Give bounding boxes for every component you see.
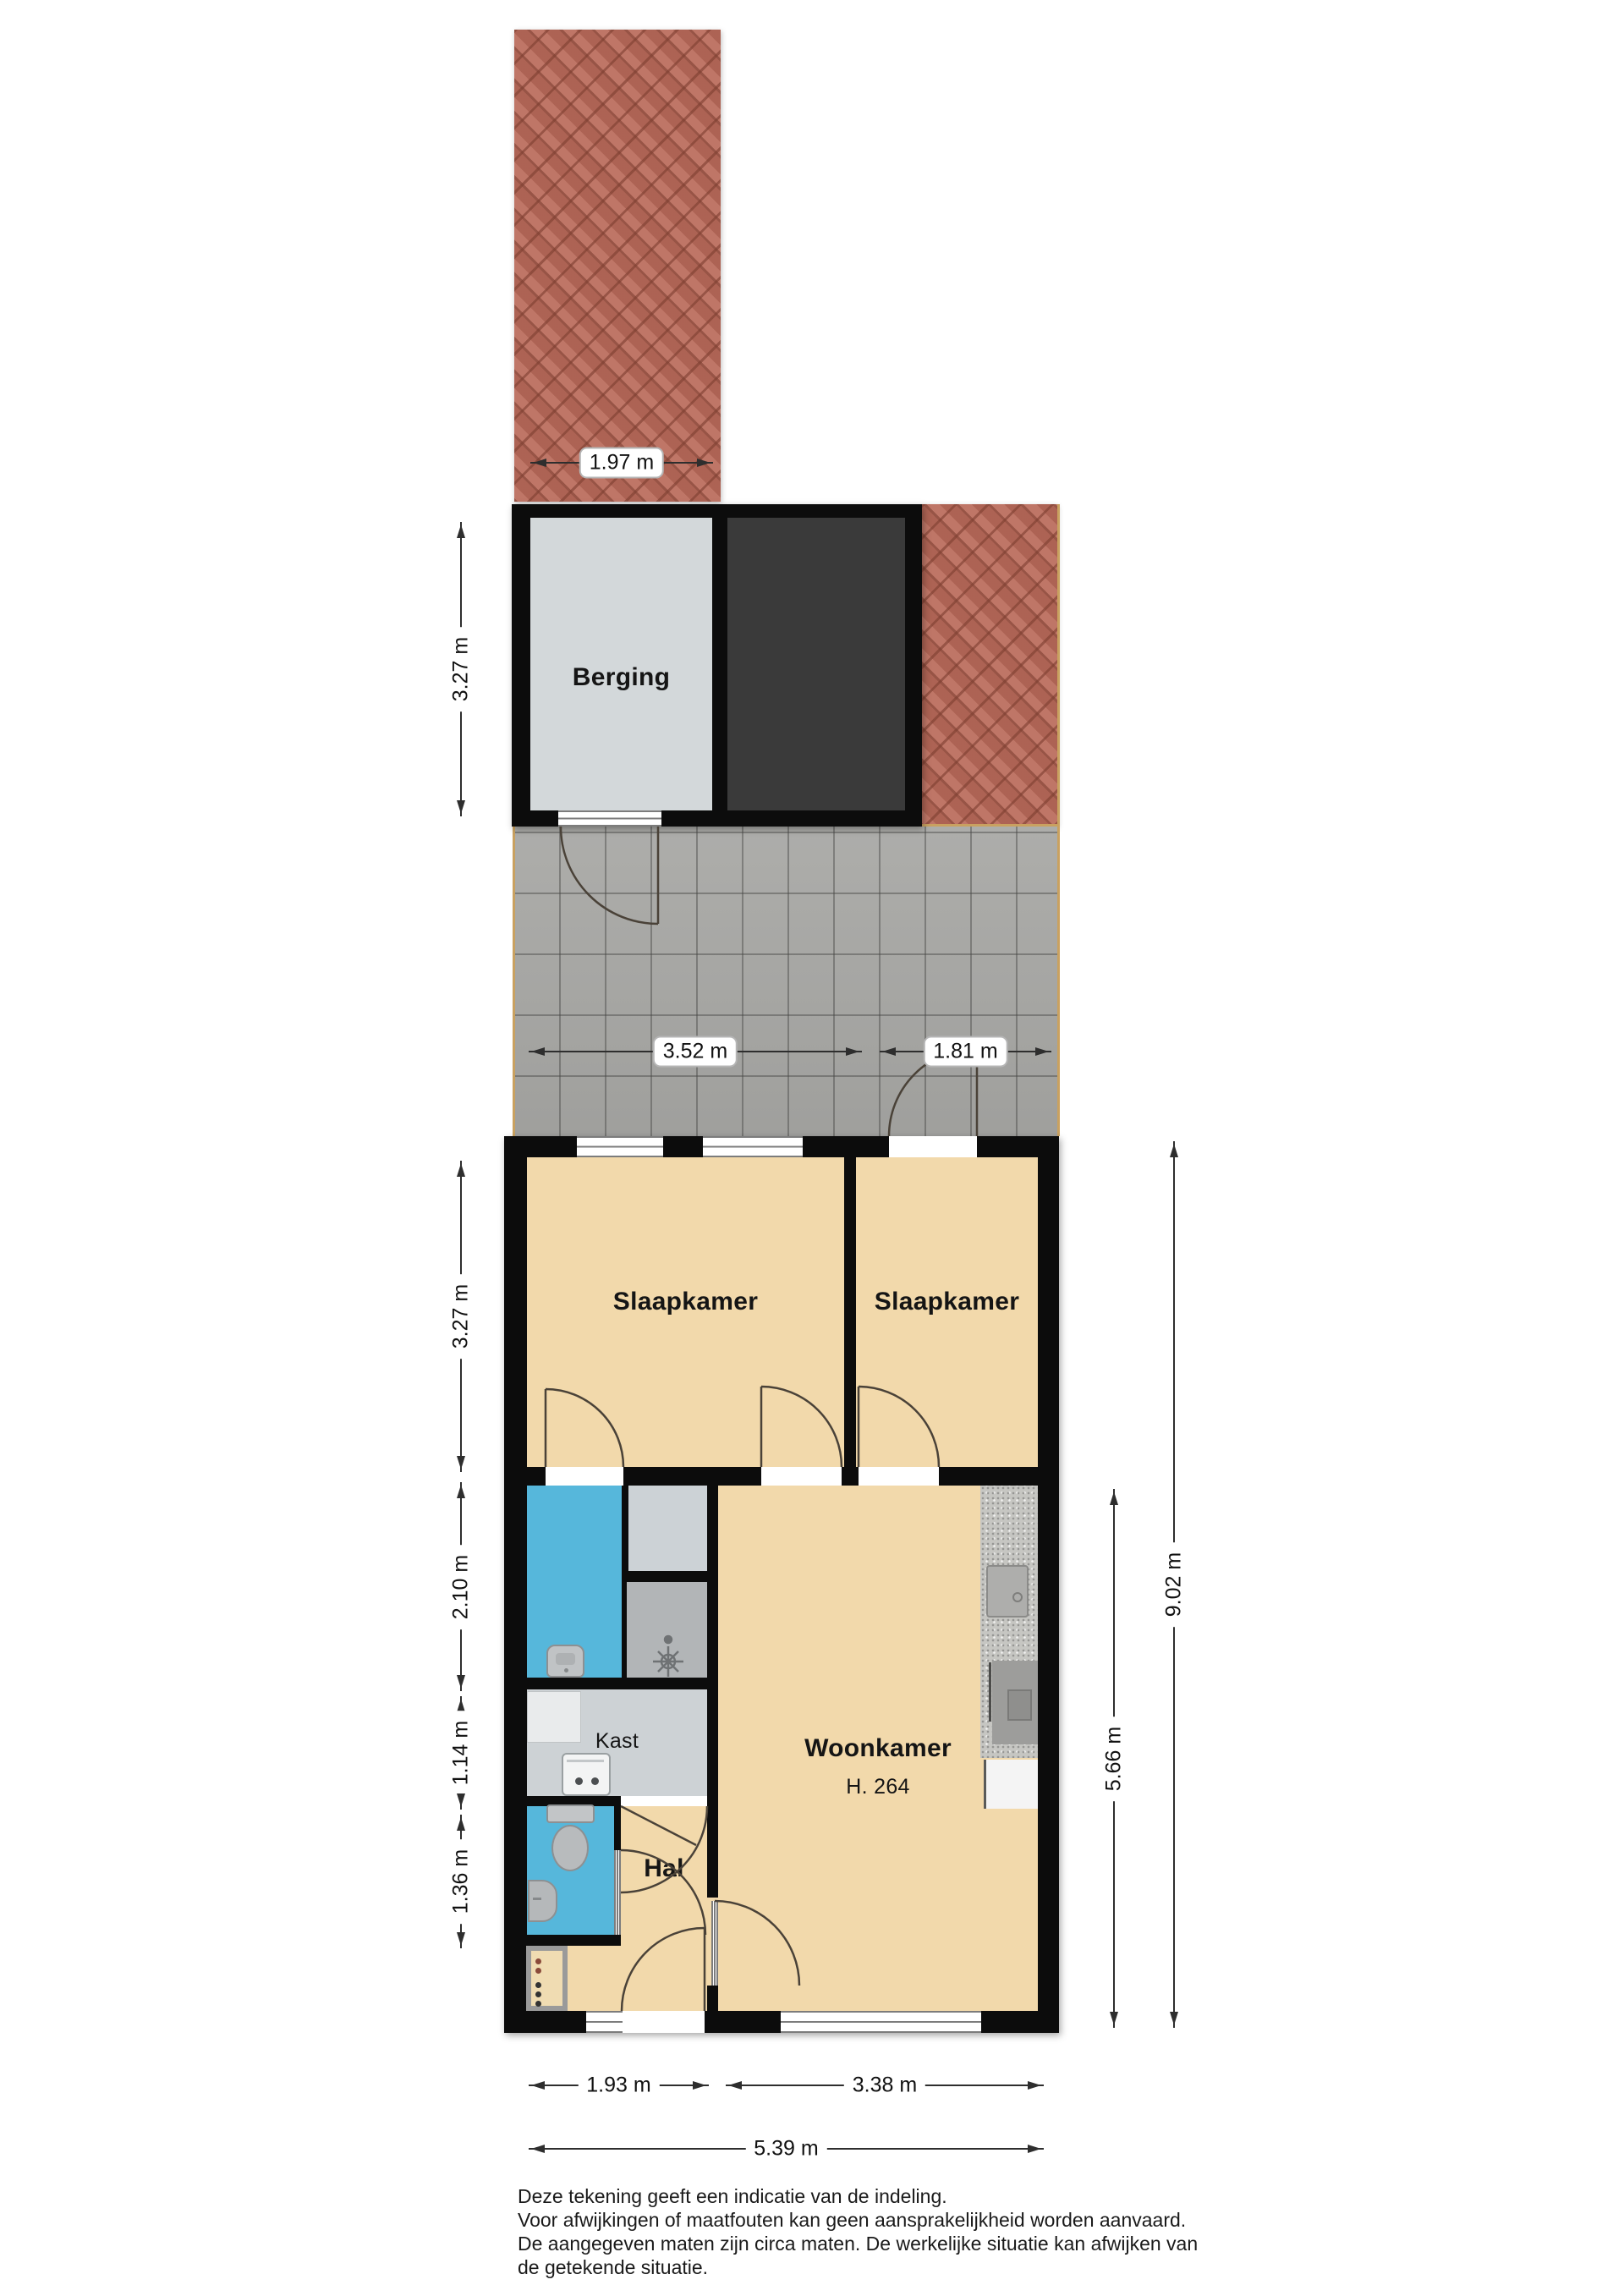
room-hal (621, 1806, 707, 2011)
berging-door-window (558, 810, 661, 827)
front-door-opening (623, 2011, 705, 2033)
dim-garden-right: 1.81 m (880, 1051, 1051, 1052)
dim-closet-depth: 1.14 m (460, 1696, 462, 1810)
bedroom-right-label: Slaapkamer (856, 1289, 1038, 1315)
door-opening-bedroom-right (859, 1467, 939, 1486)
garden-border-right (1057, 504, 1060, 1136)
disclaimer-line-2: Voor afwijkingen of maatfouten kan geen … (518, 2208, 1279, 2232)
toilet-bowl (551, 1825, 589, 1871)
dim-bedrooms-depth: 3.27 m (460, 1161, 462, 1472)
dim-bathroom-depth: 2.10 m (460, 1482, 462, 1691)
dim-label: 3.27 m (447, 1274, 475, 1359)
disclaimer-line-4: de getekende situatie. (518, 2255, 1279, 2279)
dim-front-right: 3.38 m (726, 2085, 1044, 2086)
window-front-left (586, 2011, 623, 2033)
window-bedroom-left-1 (577, 1136, 663, 1157)
dim-label: 5.66 m (1100, 1716, 1128, 1800)
dim-label: 1.93 m (578, 2072, 659, 2100)
dim-garden-left: 3.52 m (529, 1051, 862, 1052)
brick-path-top (514, 30, 721, 502)
stove-icon (992, 1661, 1038, 1744)
room-dark-storage (727, 518, 905, 810)
kitchen-appliance (984, 1760, 1038, 1809)
bath-sink-icon (546, 1645, 584, 1678)
shower-area (627, 1582, 707, 1678)
dim-label: 3.52 m (653, 1036, 738, 1068)
door-opening-kast-hal (621, 1796, 707, 1806)
berging-label: Berging (530, 665, 712, 690)
patio-tiles (515, 827, 1057, 1136)
dim-label: 1.81 m (923, 1036, 1007, 1068)
room-small-closet (628, 1486, 707, 1571)
bedroom-left-label: Slaapkamer (527, 1289, 844, 1315)
dim-label: 1.36 m (447, 1839, 475, 1924)
dim-label: 3.38 m (844, 2072, 925, 2100)
dim-label: 1.97 m (579, 448, 664, 479)
dim-label: 3.27 m (447, 627, 475, 711)
disclaimer-text: Deze tekening geeft een indicatie van de… (518, 2184, 1279, 2279)
door-opening-bedroom-left-b (761, 1467, 842, 1486)
floorplan-canvas: Berging Slaapkamer Slaapkamer Kast Hal (0, 0, 1624, 2296)
door-opening-bedroom-left-a (546, 1467, 623, 1486)
meter-panel-icon (526, 1946, 568, 2011)
dim-front-left: 1.93 m (529, 2085, 709, 2086)
patio-door-opening (889, 1136, 977, 1157)
stove-handle (989, 1662, 991, 1722)
dim-label: 1.14 m (447, 1711, 475, 1795)
kast-label: Kast (527, 1731, 707, 1752)
dim-living-depth: 5.66 m (1113, 1489, 1115, 2028)
dim-hall-depth: 1.36 m (460, 1815, 462, 1948)
dim-label: 9.02 m (1160, 1542, 1188, 1627)
wc-door-leaf (614, 1850, 621, 1935)
window-bedroom-left-2 (703, 1136, 803, 1157)
dim-shed-path-width: 1.97 m (530, 462, 713, 464)
dim-label: 2.10 m (447, 1544, 475, 1629)
dim-front-total: 5.39 m (529, 2148, 1044, 2150)
disclaimer-line-3: De aangegeven maten zijn circa maten. De… (518, 2232, 1279, 2255)
hal-label: Hal (621, 1856, 707, 1881)
window-front-right (781, 2011, 981, 2033)
hal-woonkamer-door-leaf (711, 1901, 718, 1986)
disclaimer-line-1: Deze tekening geeft een indicatie van de… (518, 2184, 1279, 2208)
dim-label: 5.39 m (745, 2135, 826, 2163)
toilet-icon (546, 1804, 595, 1823)
boiler-icon (562, 1753, 611, 1796)
dim-house-depth-total: 9.02 m (1173, 1141, 1175, 2028)
kitchen-sink-icon (986, 1565, 1029, 1618)
wc-sink-icon (528, 1880, 557, 1922)
brick-path-right (922, 504, 1057, 827)
dim-shed-height: 3.27 m (460, 522, 462, 816)
